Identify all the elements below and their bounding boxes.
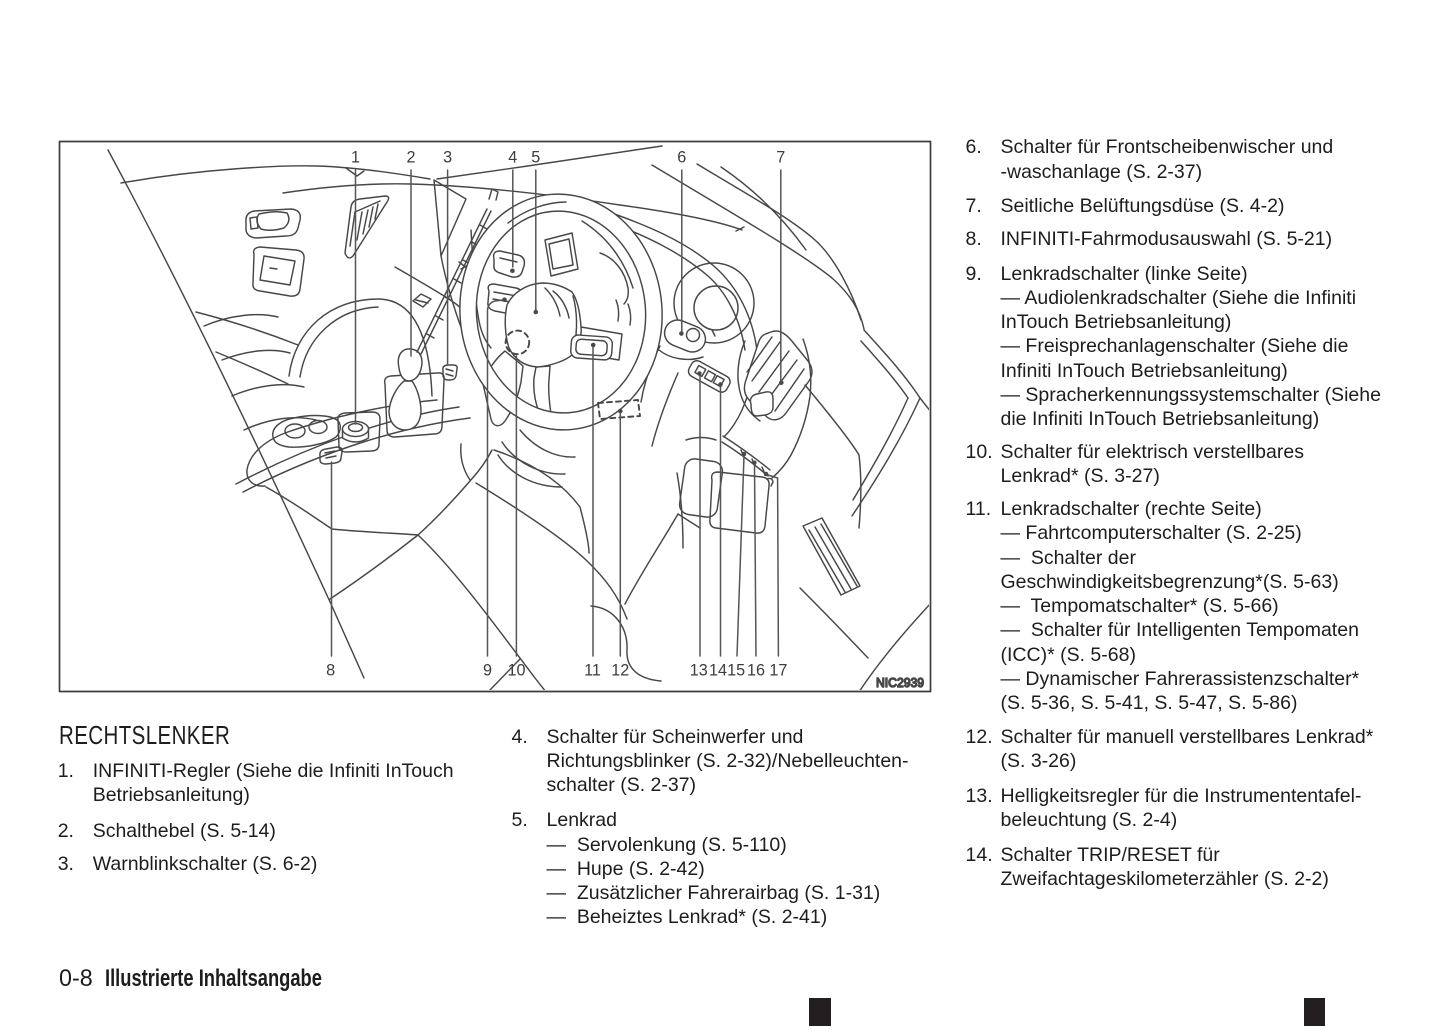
svg-text:17: 17: [769, 662, 787, 680]
svg-text:15: 15: [727, 662, 745, 680]
svg-text:2: 2: [406, 149, 415, 167]
svg-text:4: 4: [508, 149, 517, 167]
svg-text:12: 12: [611, 662, 629, 680]
svg-text:10: 10: [507, 662, 525, 680]
svg-text:1: 1: [351, 149, 360, 167]
svg-text:NIC2939: NIC2939: [876, 675, 924, 690]
svg-text:3: 3: [443, 149, 452, 167]
svg-text:6: 6: [677, 149, 686, 167]
svg-text:5: 5: [531, 149, 540, 167]
svg-text:9: 9: [483, 662, 492, 680]
svg-text:14: 14: [709, 662, 727, 680]
svg-text:8: 8: [326, 662, 335, 680]
svg-text:16: 16: [747, 662, 765, 680]
svg-text:7: 7: [776, 149, 785, 167]
svg-text:13: 13: [690, 662, 708, 680]
svg-text:11: 11: [584, 662, 601, 680]
